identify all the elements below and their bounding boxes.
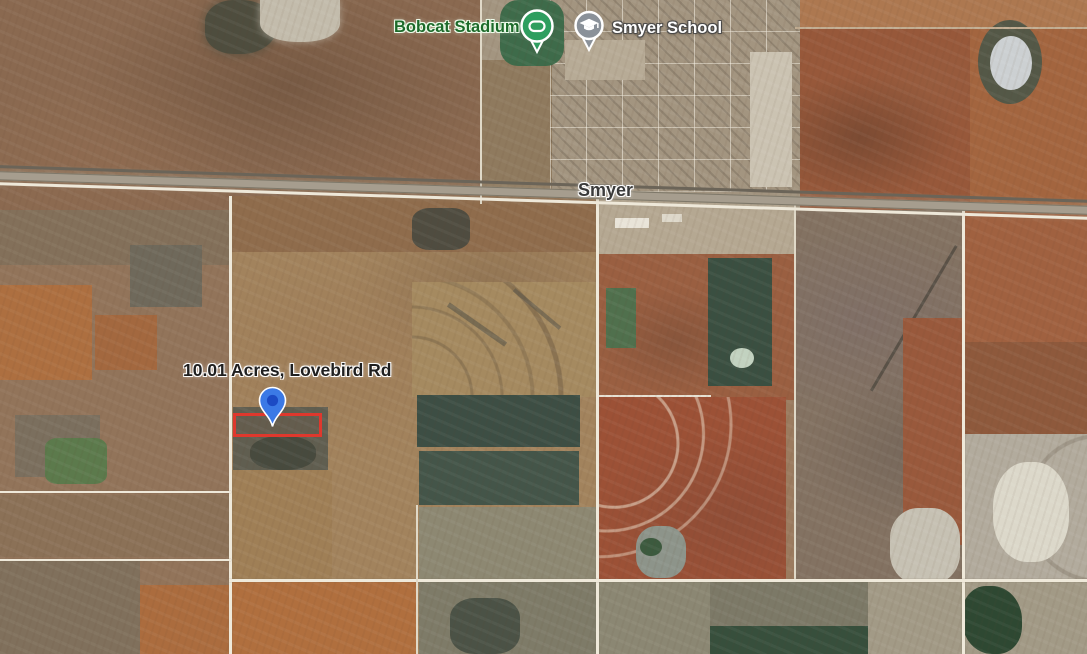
stadium-pin[interactable] xyxy=(518,8,556,54)
school-label[interactable]: Smyer School xyxy=(612,19,722,38)
crop-field-green xyxy=(417,395,580,447)
stadium-pin-circle xyxy=(522,11,553,42)
sand-playa xyxy=(993,462,1069,562)
farmstead-trees xyxy=(412,208,470,250)
pivot-field xyxy=(412,282,597,397)
scrub-lot xyxy=(0,560,140,654)
road-vertical-west xyxy=(229,196,232,654)
stadium-label[interactable]: Bobcat Stadium xyxy=(394,18,520,37)
pond-vegetation xyxy=(640,538,662,556)
satellite-map[interactable]: Bobcat Stadium Smyer School Smyer 10.01 … xyxy=(0,0,1087,654)
road-vertical-east1 xyxy=(794,204,796,582)
fallow-field xyxy=(597,582,710,654)
property-pond xyxy=(250,436,316,470)
dirt-field xyxy=(95,315,157,370)
road-horizontal-south xyxy=(229,579,1087,582)
terraced-red-field xyxy=(599,397,786,582)
fallow-field xyxy=(419,507,597,580)
road-vertical-center xyxy=(596,198,599,654)
pond-glint xyxy=(730,348,754,368)
crop-field-green xyxy=(419,451,579,505)
road-horizontal-left1 xyxy=(0,491,231,493)
lawn-patch xyxy=(45,438,107,484)
rural-lots-band xyxy=(0,495,232,557)
dirt-field xyxy=(140,585,230,654)
dirt-field xyxy=(0,285,92,380)
field-patch xyxy=(963,342,1087,434)
pond-dark-green xyxy=(962,586,1022,654)
pond-water xyxy=(990,36,1032,90)
road-horizontal-left2 xyxy=(0,559,231,561)
field-patch xyxy=(800,28,972,210)
field-boundary xyxy=(795,27,1087,29)
field-patch xyxy=(232,470,332,582)
road-vertical-east2 xyxy=(962,206,965,654)
dirt-field xyxy=(232,582,417,654)
property-pin-body xyxy=(260,388,286,427)
sand-playa xyxy=(890,508,960,584)
property-pin[interactable] xyxy=(257,386,288,428)
field-patch xyxy=(963,210,1087,342)
property-label: 10.01 Acres, Lovebird Rd xyxy=(183,360,391,381)
warehouse-building xyxy=(615,218,649,228)
scrub-lot xyxy=(130,245,202,307)
field-patch xyxy=(800,0,1087,30)
crop-field-green xyxy=(606,288,636,348)
town-label[interactable]: Smyer xyxy=(578,180,633,201)
building xyxy=(662,214,682,222)
property-pin-dot xyxy=(267,395,278,406)
dark-scrub-blob xyxy=(450,598,520,654)
crop-field-green xyxy=(710,626,868,654)
road-field-lane xyxy=(416,505,418,654)
farm-lots xyxy=(750,52,792,187)
sand-patch xyxy=(260,0,340,42)
school-pin[interactable] xyxy=(572,10,606,52)
